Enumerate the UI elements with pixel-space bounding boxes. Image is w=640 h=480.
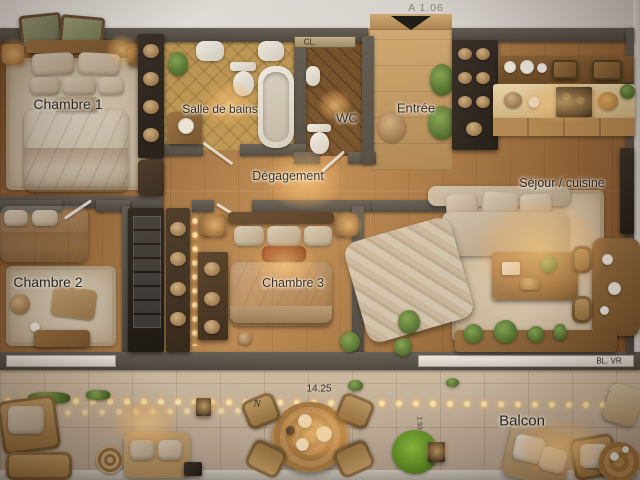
bed1-fold: [24, 148, 128, 168]
tray: [520, 278, 540, 290]
plate: [520, 60, 534, 74]
room-label-wc: WC: [336, 111, 358, 126]
lantern: [184, 462, 202, 476]
wall-sdb-wc: [294, 40, 306, 156]
room-label-sejour-cuisine: Séjour / cuisine: [519, 176, 604, 190]
cushion: [8, 406, 44, 434]
plate: [537, 63, 547, 73]
pillow: [98, 77, 124, 95]
wc-toilet-tank: [307, 124, 331, 132]
basket: [504, 92, 522, 108]
kitchen-cabinet-fronts: [493, 118, 635, 136]
plant: [394, 338, 412, 356]
dimension-entry-door: A 1.06: [408, 2, 444, 14]
basket: [458, 72, 472, 84]
basket: [476, 48, 490, 60]
deco-box: [50, 285, 97, 320]
plate: [600, 306, 609, 315]
room-label-entree: Entrée: [397, 101, 435, 116]
basket: [458, 96, 472, 108]
basket: [10, 294, 30, 314]
dining-chair: [572, 246, 592, 273]
plate: [316, 426, 332, 442]
basket: [204, 320, 220, 334]
room-label-chambre2: Chambre 2: [13, 274, 82, 290]
cup: [622, 446, 629, 453]
planter-greens: [86, 390, 110, 400]
bed3-foot-throw: [230, 306, 332, 323]
basket: [476, 96, 490, 108]
balcony-side-table: [598, 442, 640, 480]
plant: [464, 324, 483, 343]
nightstand: [2, 44, 24, 64]
basket: [458, 48, 472, 60]
window-chambre2: [6, 355, 116, 367]
basket: [204, 262, 220, 276]
dimension-balcony-depth: 1.93: [416, 416, 423, 430]
toilet-tank: [230, 62, 256, 71]
teapot: [286, 426, 295, 435]
plate: [602, 254, 613, 265]
north-indicator: N: [253, 398, 260, 410]
plate: [608, 282, 621, 295]
pillow: [30, 77, 60, 95]
plant: [494, 320, 517, 343]
sink: [258, 41, 284, 61]
bench: [34, 330, 90, 347]
burner: [562, 92, 571, 101]
nightstand: [200, 214, 226, 236]
toilet-bowl: [233, 71, 254, 96]
room-label-salle-de-bains: Salle de bains: [182, 102, 257, 116]
window-code-label: BL. VR: [596, 357, 621, 366]
basket: [143, 72, 159, 86]
wardrobe-glass: [133, 216, 161, 328]
pillow: [234, 226, 264, 246]
plate: [504, 61, 516, 73]
basket: [476, 72, 490, 84]
herb-plant: [620, 84, 635, 99]
lantern: [428, 442, 445, 462]
wicker-lounge: [6, 452, 72, 480]
room-label-balcon: Balcon: [499, 413, 545, 430]
floor-plan-render: Chambre 1 Salle de bains WC Entrée Dégag…: [0, 0, 640, 480]
basket: [143, 44, 159, 58]
plant: [168, 52, 188, 76]
plant: [340, 332, 360, 352]
plant: [430, 64, 454, 96]
burner: [576, 96, 585, 105]
pillow: [62, 77, 96, 95]
cushion: [130, 440, 154, 460]
basket: [466, 122, 482, 136]
wc-sink: [306, 66, 320, 86]
sofa-seat: [442, 212, 568, 256]
pillow: [267, 226, 301, 246]
plant: [540, 256, 557, 273]
entry-arrow-icon: [391, 16, 431, 30]
dining-chair: [572, 296, 592, 323]
room-label-chambre3: Chambre 3: [262, 276, 324, 290]
side-cabinet: [620, 148, 634, 234]
bed2-throw: [0, 232, 88, 246]
basket: [170, 222, 186, 236]
room-label-degagement: Dégagement: [252, 169, 324, 183]
pillow: [31, 52, 74, 76]
sink: [196, 41, 224, 61]
spiral-basket: [96, 446, 124, 474]
basket: [170, 282, 186, 296]
accent-pillow: [262, 246, 306, 262]
small-plant: [348, 380, 363, 391]
pillow: [77, 52, 120, 76]
round-basin: [178, 118, 194, 134]
basket: [170, 252, 186, 266]
pillow: [32, 210, 58, 226]
entry-pouf: [378, 112, 406, 142]
basket: [143, 128, 159, 142]
cabinet: [138, 160, 164, 196]
plate: [296, 438, 309, 451]
basket: [204, 292, 220, 306]
wall-hall-c: [192, 200, 214, 212]
cactus: [554, 324, 566, 340]
coffee-table: [492, 252, 578, 300]
picture-frame: [592, 60, 622, 80]
bed1-headboard: [26, 40, 126, 53]
basket: [143, 100, 159, 114]
small-plant: [446, 378, 459, 387]
nightstand: [334, 214, 358, 236]
basket: [170, 312, 186, 326]
wall-sdb-bottom-a: [163, 144, 203, 156]
picture-frame: [552, 60, 578, 79]
basket: [238, 332, 252, 345]
closet-label: CL.: [304, 38, 316, 47]
plate: [298, 414, 312, 428]
dimension-balcony-length: 14.25: [306, 384, 331, 395]
plant: [398, 310, 420, 334]
cushion: [158, 440, 182, 460]
plant: [528, 326, 544, 342]
stove: [556, 87, 592, 117]
bowl: [598, 92, 618, 110]
pillow: [304, 226, 332, 246]
table-frame: [502, 262, 520, 275]
bed3-headboard: [228, 212, 334, 224]
room-label-chambre1: Chambre 1: [33, 96, 102, 112]
cup: [610, 452, 619, 461]
pillow: [4, 210, 28, 226]
entry-corridor-floor: [370, 28, 452, 170]
bathtub-basin: [263, 72, 289, 142]
wc-toilet-bowl: [310, 132, 329, 154]
lantern: [196, 398, 211, 416]
wall-wc-entree: [362, 36, 374, 164]
plate: [528, 96, 540, 108]
